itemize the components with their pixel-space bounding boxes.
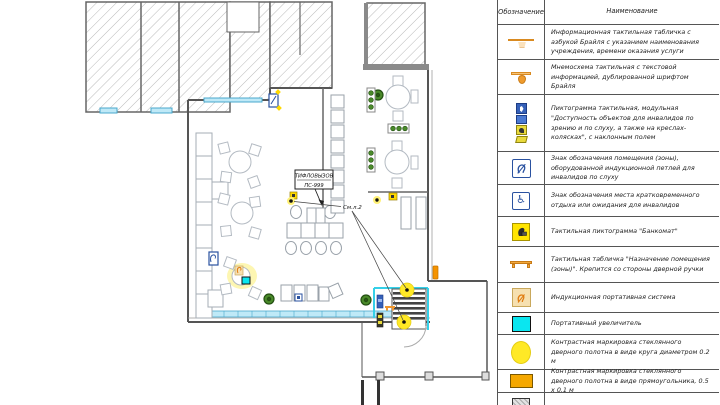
wall-seating-column <box>331 95 344 213</box>
legend-header-symbol: Обозначение <box>498 0 545 24</box>
legend-row: Контрастная маркировка стеклянного дверн… <box>498 335 719 370</box>
legend-row: Контрастная маркировка стеклянного дверн… <box>498 370 719 393</box>
waiting-benches <box>401 197 426 229</box>
portable-induction-system-marker <box>235 266 243 275</box>
tiflo-call-line1: ТИФЛОВЫЗОВ <box>295 174 334 180</box>
tiflo-call-label: ТИФЛОВЫЗОВ ПС-999 <box>295 170 334 206</box>
portable-magnifier-marker <box>242 277 250 284</box>
legend-row: Тактильная табличка "Назначение помещени… <box>498 247 719 283</box>
door-tactile-sign-icon <box>510 261 532 269</box>
induction-loop-wall-sign <box>209 252 218 265</box>
legend-row: ♿ Знак обозначения места кратковременног… <box>498 185 719 217</box>
wheelchair-rest-sign-icon: ♿ <box>512 192 530 210</box>
legend-row: Портативный увеличитель <box>498 313 719 335</box>
induction-loop-sign-icon <box>512 159 531 178</box>
legend-header-name: Наименование <box>545 0 719 24</box>
see-sheet-label: См.л.2 <box>343 205 362 211</box>
accessible-seat-sign <box>295 294 302 301</box>
legend-header: Обозначение Наименование <box>498 0 719 25</box>
accessibility-floor-plan-sheet: ТИФЛОВЫЗОВ ПС-999 См.л.2 Обозначение Наи… <box>0 0 720 405</box>
bottom-furniture-row <box>281 283 343 301</box>
legend-row: Мнемосхема тактильная с текстовой информ… <box>498 60 719 95</box>
legend-row: Знак обозначения помещения (зоны), обору… <box>498 152 719 185</box>
modular-pictogram-icon <box>516 103 527 143</box>
legend-row: Тактильная пиктограмма "Банкомат" <box>498 217 719 247</box>
contrast-rect-marking-icon <box>510 374 533 388</box>
portable-induction-system-icon <box>512 288 531 307</box>
hatched-rooms-top-left <box>86 2 332 112</box>
hatched-area-icon <box>512 398 530 405</box>
window-hall-top <box>204 98 262 102</box>
legend-row <box>498 393 719 405</box>
hatched-room-top-right <box>363 3 429 70</box>
legend-row: Индукционная портативная система <box>498 283 719 313</box>
accessible-table-highlight <box>220 257 261 300</box>
tiflo-call-line2: ПС-999 <box>304 183 323 189</box>
portable-magnifier-icon <box>512 316 531 332</box>
contrast-circle-marking-icon <box>511 341 531 364</box>
legend-row: Информационная тактильная табличка с азб… <box>498 25 719 60</box>
wide-tactile-sign-icon <box>508 37 534 48</box>
legend-table: Обозначение Наименование Информационная … <box>497 0 719 405</box>
bankomat-pictogram-icon <box>512 223 530 241</box>
window-band-bottom <box>197 311 400 317</box>
floor-plan-drawing: ТИФЛОВЫЗОВ ПС-999 См.л.2 <box>0 0 497 405</box>
legend-row: Пиктограмма тактильная, модульная "Досту… <box>498 95 719 152</box>
tactile-mnemoscheme-icon <box>511 71 531 83</box>
